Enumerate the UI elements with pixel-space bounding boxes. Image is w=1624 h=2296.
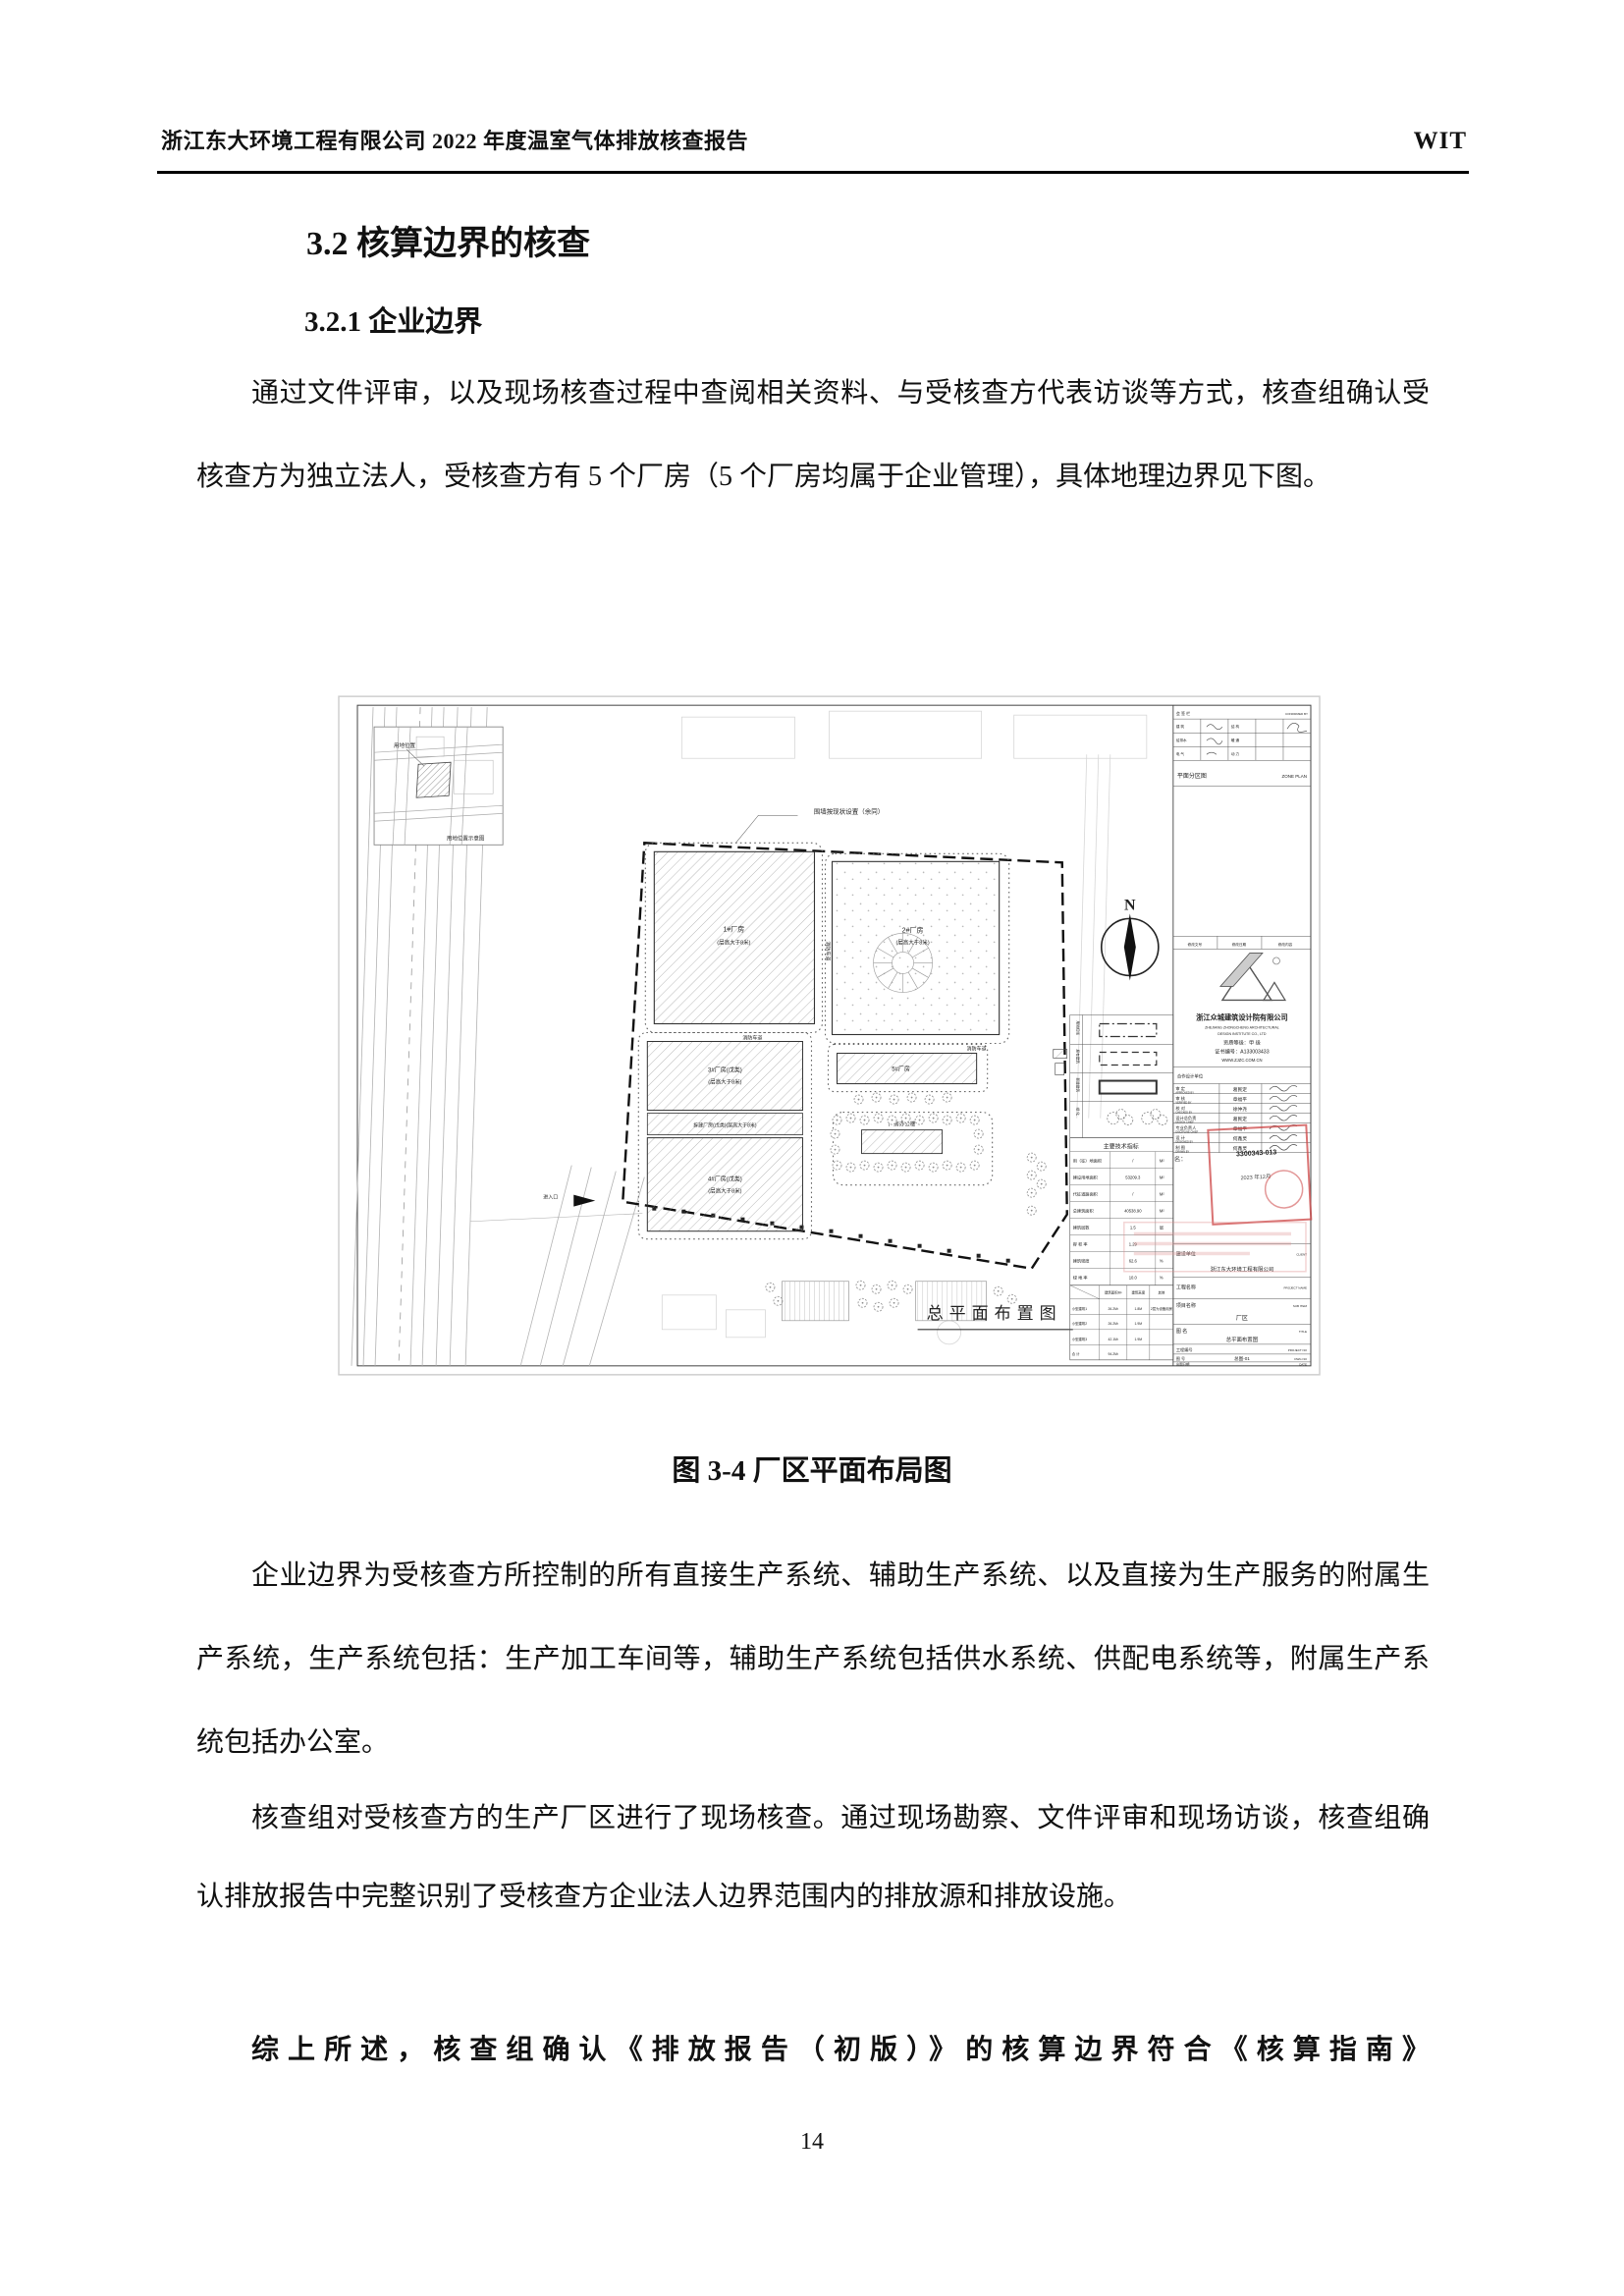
header-title: 浙江东大环境工程有限公司 2022 年度温室气体排放核查报告 — [161, 124, 748, 155]
building-2 — [833, 861, 1000, 1034]
svg-text:1.9M: 1.9M — [1135, 1322, 1143, 1326]
svg-text:TITLE: TITLE — [1299, 1330, 1307, 1334]
svg-text:会 签 栏: 会 签 栏 — [1176, 710, 1190, 716]
svg-text:修改内容: 修改内容 — [1278, 942, 1293, 947]
svg-text:%: % — [1160, 1276, 1164, 1281]
svg-text:PROJECT NAME: PROJECT NAME — [1284, 1286, 1307, 1290]
svg-text:原有建筑: 原有建筑 — [1075, 1050, 1080, 1065]
svg-text:绿 地 率: 绿 地 率 — [1073, 1275, 1088, 1282]
svg-text:电 气: 电 气 — [1176, 751, 1185, 756]
svg-text:葛民定: 葛民定 — [1233, 1116, 1248, 1122]
subitem-value: 厂区 — [1236, 1315, 1248, 1322]
svg-text:合作设计单位: 合作设计单位 — [1177, 1073, 1204, 1080]
svg-text:项目名称: 项目名称 — [1176, 1302, 1196, 1309]
svg-text:1.5: 1.5 — [1130, 1226, 1136, 1230]
svg-text:2层为设备用房: 2层为设备用房 — [1151, 1306, 1173, 1311]
building-4 — [647, 1138, 802, 1231]
svg-text:DATE: DATE — [1299, 1362, 1307, 1366]
svg-text:建设用地面积: 建设用地面积 — [1073, 1175, 1098, 1181]
header-logo-text: WIT — [1414, 128, 1467, 155]
svg-text:62.6: 62.6 — [1129, 1259, 1138, 1264]
svg-text:10.0: 10.0 — [1129, 1276, 1138, 1281]
svg-text:(层高大于8米): (层高大于8米) — [708, 1187, 741, 1195]
section-heading: 3.2 核算边界的核查 — [306, 216, 590, 264]
svg-text:消防车道: 消防车道 — [967, 1046, 987, 1053]
client-name: 浙江东大环境工程有限公司 — [1211, 1266, 1274, 1274]
svg-text:葛民定: 葛民定 — [1233, 1086, 1248, 1093]
svg-text:暖 通: 暖 通 — [1231, 738, 1240, 742]
svg-text:%: % — [1160, 1259, 1164, 1264]
site-plan-figure: 用地位置 用地位置示意图 — [338, 695, 1322, 1377]
svg-text:建筑面积M²: 建筑面积M² — [1105, 1290, 1122, 1295]
svg-text:DRAWN BY: DRAWN BY — [1175, 1149, 1189, 1153]
zone-plan-en: ZONE PLAN — [1281, 774, 1307, 779]
site-plan-drawing: 用地位置 用地位置示意图 — [338, 695, 1322, 1377]
svg-text:(层高大于8米): (层高大于8米) — [895, 938, 929, 946]
svg-text:修改日期: 修改日期 — [1232, 942, 1247, 947]
svg-text:建筑层数: 建筑层数 — [1073, 1225, 1091, 1231]
building-1 — [654, 851, 814, 1023]
svg-text:DESIGN CHIEF: DESIGN CHIEF — [1175, 1120, 1194, 1123]
indicators-title: 主要技术指标 — [1104, 1143, 1139, 1151]
inset-map: 用地位置 用地位置示意图 — [374, 727, 503, 845]
svg-text:42.1M²: 42.1M² — [1109, 1338, 1119, 1341]
svg-text:消防车道: 消防车道 — [824, 941, 831, 960]
svg-text:M²: M² — [1160, 1209, 1164, 1214]
svg-text:CONFIRMED BY: CONFIRMED BY — [1285, 712, 1308, 716]
svg-text:M²: M² — [1160, 1159, 1164, 1164]
building-3-label: 3#厂房(戊类) — [708, 1066, 742, 1074]
svg-text:建筑密度: 建筑密度 — [1073, 1258, 1091, 1265]
svg-text:绿 化: 绿 化 — [1075, 1108, 1080, 1117]
svg-text:VERIFIED BY: VERIFIED BY — [1175, 1100, 1191, 1104]
svg-text:结 构: 结 构 — [1231, 724, 1240, 729]
inset-site-label: 用地位置 — [394, 741, 416, 749]
page-header: 浙江东大环境工程有限公司 2022 年度温室气体排放核查报告 WIT — [161, 124, 1467, 155]
svg-text:26.2M²: 26.2M² — [1109, 1307, 1119, 1311]
svg-text:用（征）地面积: 用（征）地面积 — [1073, 1158, 1102, 1165]
svg-text:DESIGN INSTITUTE CO., LTD: DESIGN INSTITUTE CO., LTD — [1218, 1032, 1267, 1036]
svg-text:出图日期: 出图日期 — [1176, 1361, 1190, 1366]
paragraph-2: 企业边界为受核查方所控制的所有直接生产系统、辅助生产系统、以及直接为生产服务的附… — [196, 1534, 1430, 1784]
svg-text:小型建筑2: 小型建筑2 — [1072, 1321, 1088, 1326]
inset-site-parcel — [416, 762, 451, 797]
paragraph-3: 核查组对受核查方的生产厂区进行了现场核查。通过现场勘察、文件评审和现场访谈，核查… — [196, 1779, 1430, 1937]
svg-text:M²: M² — [1160, 1175, 1164, 1180]
svg-text:N: N — [1124, 897, 1136, 913]
svg-text:DESIGNED BY: DESIGNED BY — [1175, 1139, 1193, 1143]
dwgno-value: 总图-01 — [1234, 1355, 1250, 1362]
building-3 — [647, 1042, 802, 1111]
svg-text:40538.90: 40538.90 — [1124, 1209, 1142, 1214]
svg-text:DISCIPLINE CHIEF: DISCIPLINE CHIEF — [1175, 1129, 1198, 1133]
building-4-label: 4#厂房(戊类) — [708, 1175, 742, 1183]
svg-text:资质等级：甲 级: 资质等级：甲 级 — [1223, 1039, 1261, 1047]
svg-text:(层高大于8米): (层高大于8米) — [708, 1078, 741, 1086]
paragraph-conclusion: 综上所述，核查组确认《排放报告（初版）》的核算边界符合《核算指南》 — [196, 2025, 1430, 2076]
svg-text:新建建筑: 新建建筑 — [1075, 1078, 1080, 1093]
inset-caption: 用地位置示意图 — [447, 834, 485, 842]
company-name-cn: 浙江众城建筑设计院有限公司 — [1196, 1012, 1287, 1021]
svg-text:94.2M²: 94.2M² — [1109, 1352, 1119, 1356]
svg-text:图 号: 图 号 — [1176, 1355, 1185, 1361]
svg-text:给排水: 给排水 — [1176, 738, 1187, 742]
svg-text:26.2M²: 26.2M² — [1109, 1322, 1119, 1326]
svg-text:APPROVED BY: APPROVED BY — [1175, 1090, 1194, 1094]
plan-title: 总平面布置图 — [927, 1304, 1062, 1323]
header-rule — [157, 171, 1469, 174]
svg-text:修改文号: 修改文号 — [1188, 942, 1203, 947]
figure-caption: 图 3-4 厂区平面布局图 — [0, 1448, 1624, 1489]
svg-text:(层高大于8米): (层高大于8米) — [717, 938, 750, 946]
zone-plan-cn: 平面分区图 — [1177, 772, 1207, 780]
svg-text:CHECKED BY: CHECKED BY — [1175, 1110, 1192, 1114]
svg-text:1.8M: 1.8M — [1135, 1307, 1143, 1311]
subsection-heading: 3.2.1 企业边界 — [304, 299, 482, 340]
svg-text:DWG NO: DWG NO — [1294, 1357, 1307, 1361]
svg-text:建 筑: 建 筑 — [1176, 724, 1185, 729]
svg-text:消防车道: 消防车道 — [742, 1035, 762, 1042]
svg-text:SUB ITEM: SUB ITEM — [1293, 1304, 1308, 1308]
svg-text:53209.3: 53209.3 — [1125, 1175, 1141, 1180]
building-2-label: 2#厂房 — [902, 925, 924, 934]
svg-text:WWW.ZJZC.COM.CN: WWW.ZJZC.COM.CN — [1221, 1058, 1262, 1063]
entrance-label: 进入口 — [543, 1194, 558, 1201]
svg-text:合 计: 合 计 — [1072, 1351, 1080, 1356]
svg-text:代征道路面积: 代征道路面积 — [1073, 1191, 1098, 1198]
svg-text:容 积 率: 容 积 率 — [1073, 1241, 1088, 1248]
svg-text:1.9M: 1.9M — [1135, 1338, 1143, 1341]
svg-text:何鑫灵: 何鑫灵 — [1233, 1135, 1248, 1142]
svg-text:用地红线: 用地红线 — [1075, 1020, 1080, 1035]
svg-text:小型建筑1: 小型建筑1 — [1072, 1306, 1088, 1311]
wall-annotation: 围墙按现状设置（余同） — [814, 806, 885, 815]
svg-text:动 力: 动 力 — [1231, 751, 1240, 756]
svg-text:章福平: 章福平 — [1233, 1096, 1248, 1103]
svg-text:徐仲尧: 徐仲尧 — [1233, 1106, 1248, 1113]
svg-text:图 名: 图 名 — [1176, 1328, 1187, 1335]
building-1-label: 1#厂房 — [724, 924, 745, 933]
svg-text:证书编号：A133003433: 证书编号：A133003433 — [1215, 1048, 1269, 1056]
svg-text:工程名称: 工程名称 — [1176, 1285, 1196, 1291]
strip-label: 拆建厂房(戊类)(层高大于8米) — [693, 1122, 757, 1129]
svg-text:小型建筑3: 小型建筑3 — [1072, 1337, 1088, 1341]
svg-text:建筑高度: 建筑高度 — [1132, 1290, 1146, 1295]
svg-text:M²: M² — [1160, 1192, 1164, 1197]
svg-text:总建筑面积: 总建筑面积 — [1073, 1208, 1094, 1215]
svg-text:其他: 其他 — [1158, 1290, 1164, 1295]
building-5-label: 5#厂房 — [892, 1066, 910, 1073]
paragraph-1: 通过文件评审，以及现场核查过程中查阅相关资料、与受核查方代表访谈等方式，核查组确… — [196, 352, 1430, 519]
drawing-title-value: 总平面布置图 — [1226, 1336, 1258, 1343]
svg-text:PROJECT NO: PROJECT NO — [1288, 1348, 1308, 1352]
office-building — [862, 1130, 943, 1154]
svg-text:工程编号: 工程编号 — [1176, 1346, 1193, 1353]
page-number: 14 — [0, 2129, 1624, 2156]
svg-text:ZHEJIANG ZHONGCHENG ARCHITECTU: ZHEJIANG ZHONGCHENG ARCHITECTURAL — [1205, 1025, 1279, 1029]
